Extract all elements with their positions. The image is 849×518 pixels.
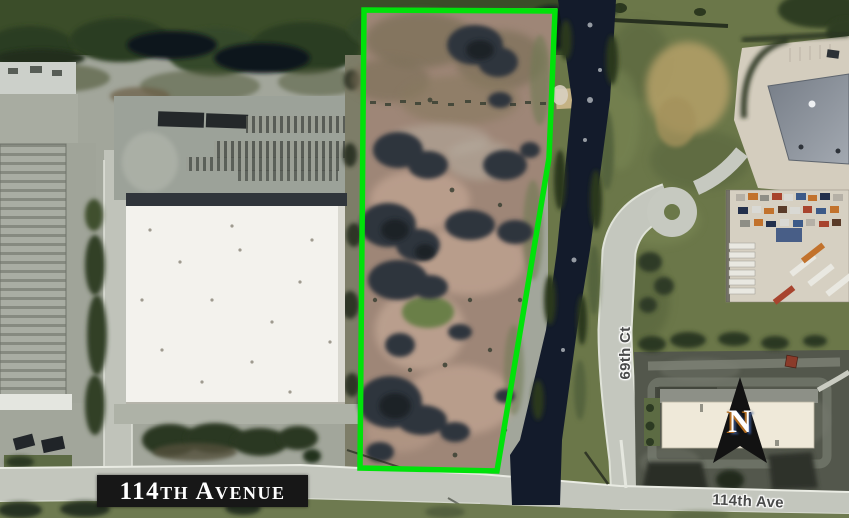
aerial-map: 114th Avenue 69th Ct 114th Ave N [0,0,849,518]
north-arrow-letter: N [720,404,760,441]
street-label-69th-ct: 69th Ct [617,303,637,403]
parcel-boundary-polygon [360,10,555,471]
north-arrow: N [700,370,780,470]
street-banner-114th-avenue: 114th Avenue [97,475,308,507]
